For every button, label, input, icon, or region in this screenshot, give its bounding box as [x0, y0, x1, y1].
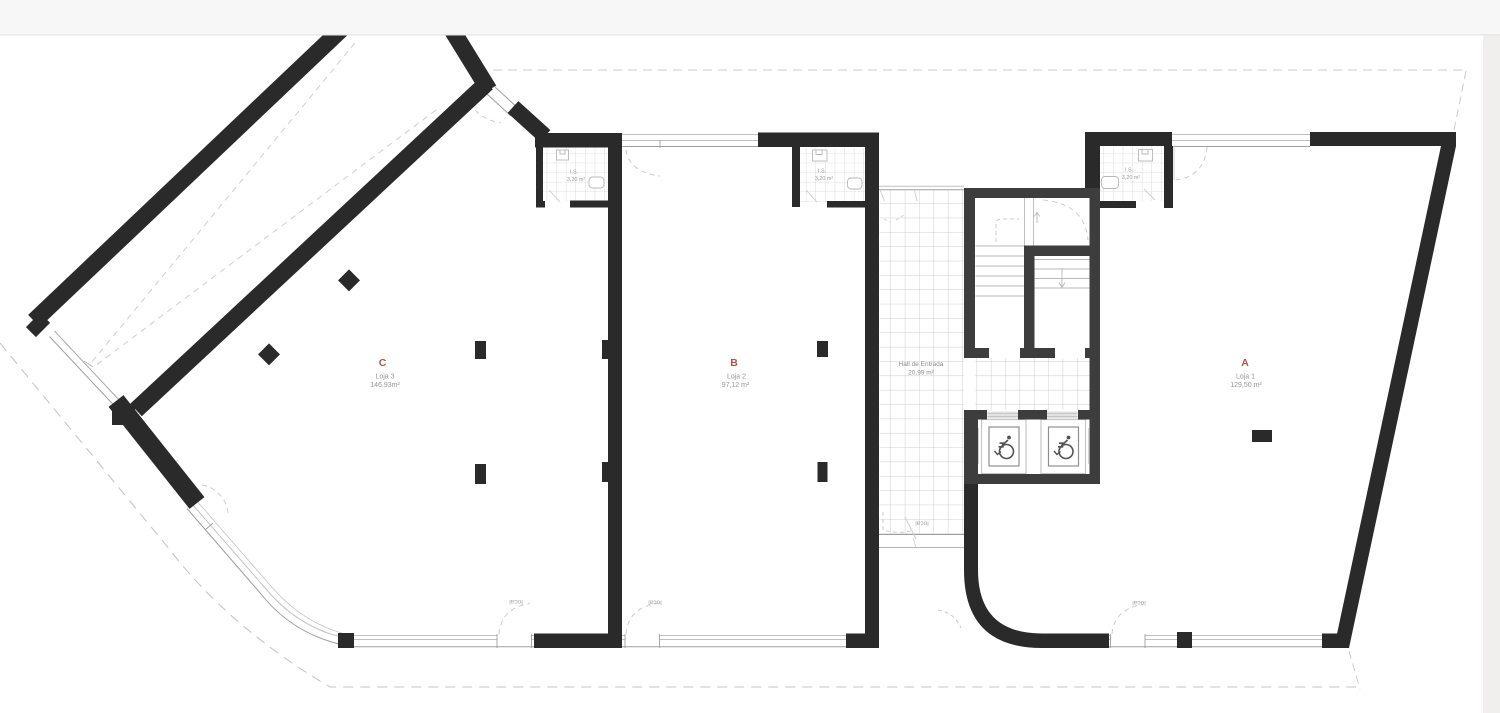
svg-text:129,50 m²: 129,50 m²	[1230, 382, 1262, 389]
svg-text:Loja 3: Loja 3	[375, 374, 394, 381]
svg-text:local: local	[648, 599, 662, 606]
svg-text:3,20 m²: 3,20 m²	[815, 176, 833, 182]
svg-text:Loja 2: Loja 2	[727, 374, 746, 381]
svg-text:20,99 m²: 20,99 m²	[908, 370, 934, 377]
svg-text:C: C	[379, 357, 387, 369]
svg-text:3,20 m²: 3,20 m²	[1122, 175, 1140, 181]
svg-text:I.S.: I.S.	[570, 170, 578, 176]
svg-text:B: B	[730, 357, 738, 369]
svg-text:Hall de Entrada: Hall de Entrada	[899, 361, 944, 368]
svg-text:local: local	[915, 520, 929, 527]
svg-text:I.S.: I.S.	[818, 169, 826, 175]
svg-text:A: A	[1241, 357, 1249, 369]
svg-text:I.S.: I.S.	[1125, 168, 1133, 174]
svg-text:146,93m²: 146,93m²	[370, 382, 400, 389]
svg-text:local: local	[509, 598, 523, 605]
svg-text:3,20 m²: 3,20 m²	[567, 177, 585, 183]
svg-text:local: local	[1132, 599, 1146, 606]
svg-text:97,12 m²: 97,12 m²	[722, 382, 750, 389]
svg-text:Loja 1: Loja 1	[1236, 374, 1255, 381]
